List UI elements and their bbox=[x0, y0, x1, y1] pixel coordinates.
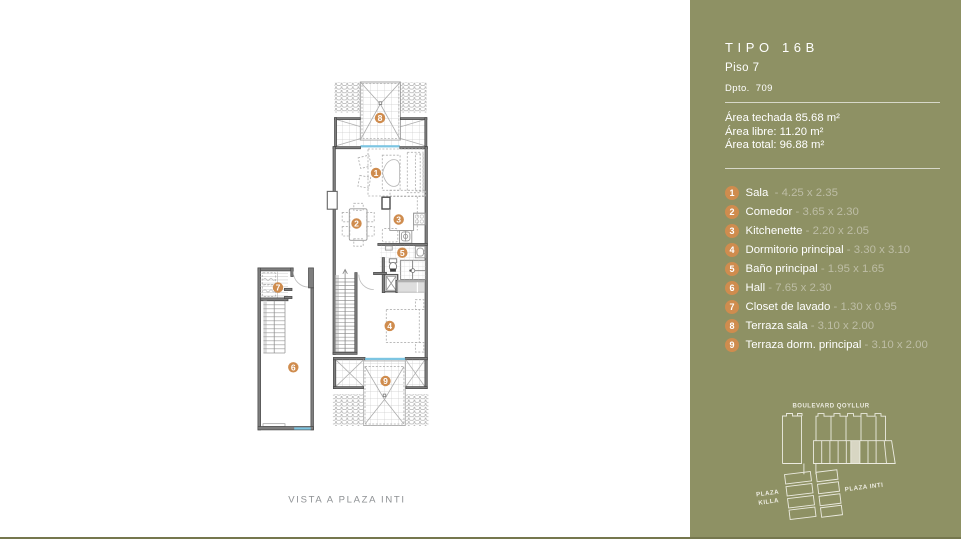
svg-text:1: 1 bbox=[374, 168, 379, 178]
svg-text:PLAZA INTI: PLAZA INTI bbox=[844, 482, 883, 494]
svg-text:VISTA A PLAZA INTI: VISTA A PLAZA INTI bbox=[288, 495, 406, 506]
svg-text:3: 3 bbox=[396, 215, 401, 225]
svg-text:4: 4 bbox=[387, 321, 392, 331]
svg-text:5: 5 bbox=[400, 248, 405, 258]
svg-text:KILLA: KILLA bbox=[758, 497, 779, 506]
svg-text:7: 7 bbox=[276, 283, 281, 293]
svg-text:9: 9 bbox=[383, 376, 388, 386]
svg-text:BOULEVARD QOYLLUR: BOULEVARD QOYLLUR bbox=[792, 404, 869, 410]
svg-text:8: 8 bbox=[378, 113, 383, 123]
svg-text:2: 2 bbox=[354, 219, 359, 229]
svg-text:6: 6 bbox=[291, 362, 296, 372]
